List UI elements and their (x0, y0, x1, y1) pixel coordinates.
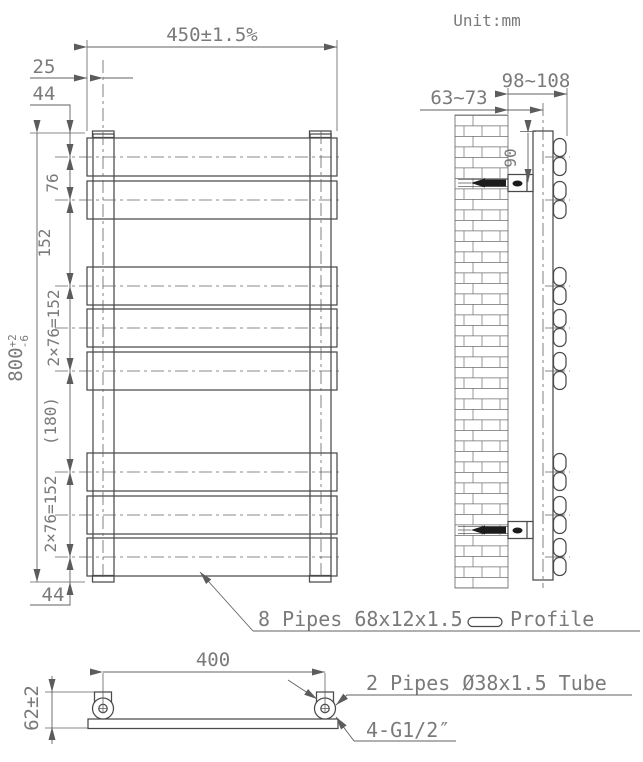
chain-dim-2x76-lower: 2×76=152 (41, 475, 60, 552)
top-end-label: 44 (33, 83, 56, 105)
bolt-head-icon (513, 181, 523, 187)
width-dim-label: 450±1.5% (166, 24, 258, 46)
pipes-leader-label: 8 Pipes 68x12x1.5 (258, 607, 463, 631)
wall-to-face-label: 98~108 (502, 70, 571, 92)
chain-dim-2x76-upper: 2×76=152 (44, 289, 63, 366)
thread-leader-label: 4-G1/2″ (366, 718, 450, 742)
centers-dim-label: 400 (196, 649, 230, 671)
chain-dim-76: 76 (43, 173, 62, 192)
bottom-end-label: 44 (42, 584, 65, 606)
tube-leader-label: 2 Pipes Ø38x1.5 Tube (366, 671, 607, 695)
bracket-offset-label: 90 (501, 148, 520, 167)
wall-to-center-label: 63~73 (430, 87, 487, 109)
valve-height-label: 62±2 (21, 685, 43, 731)
technical-drawing-page: Unit:mm (0, 0, 643, 762)
radiator-drawing: Unit:mm (0, 0, 643, 762)
height-dim-value: 800 (5, 347, 27, 381)
profile-label: Profile (510, 607, 594, 631)
height-tol-minus: -6 (18, 335, 31, 348)
chain-dim-152: 152 (35, 229, 54, 258)
bolt-head-icon (513, 528, 523, 534)
chain-dim-180: (180) (41, 397, 60, 445)
tube-offset-label: 25 (33, 56, 56, 78)
unit-label: Unit:mm (453, 11, 520, 30)
paper-background (0, 0, 643, 762)
